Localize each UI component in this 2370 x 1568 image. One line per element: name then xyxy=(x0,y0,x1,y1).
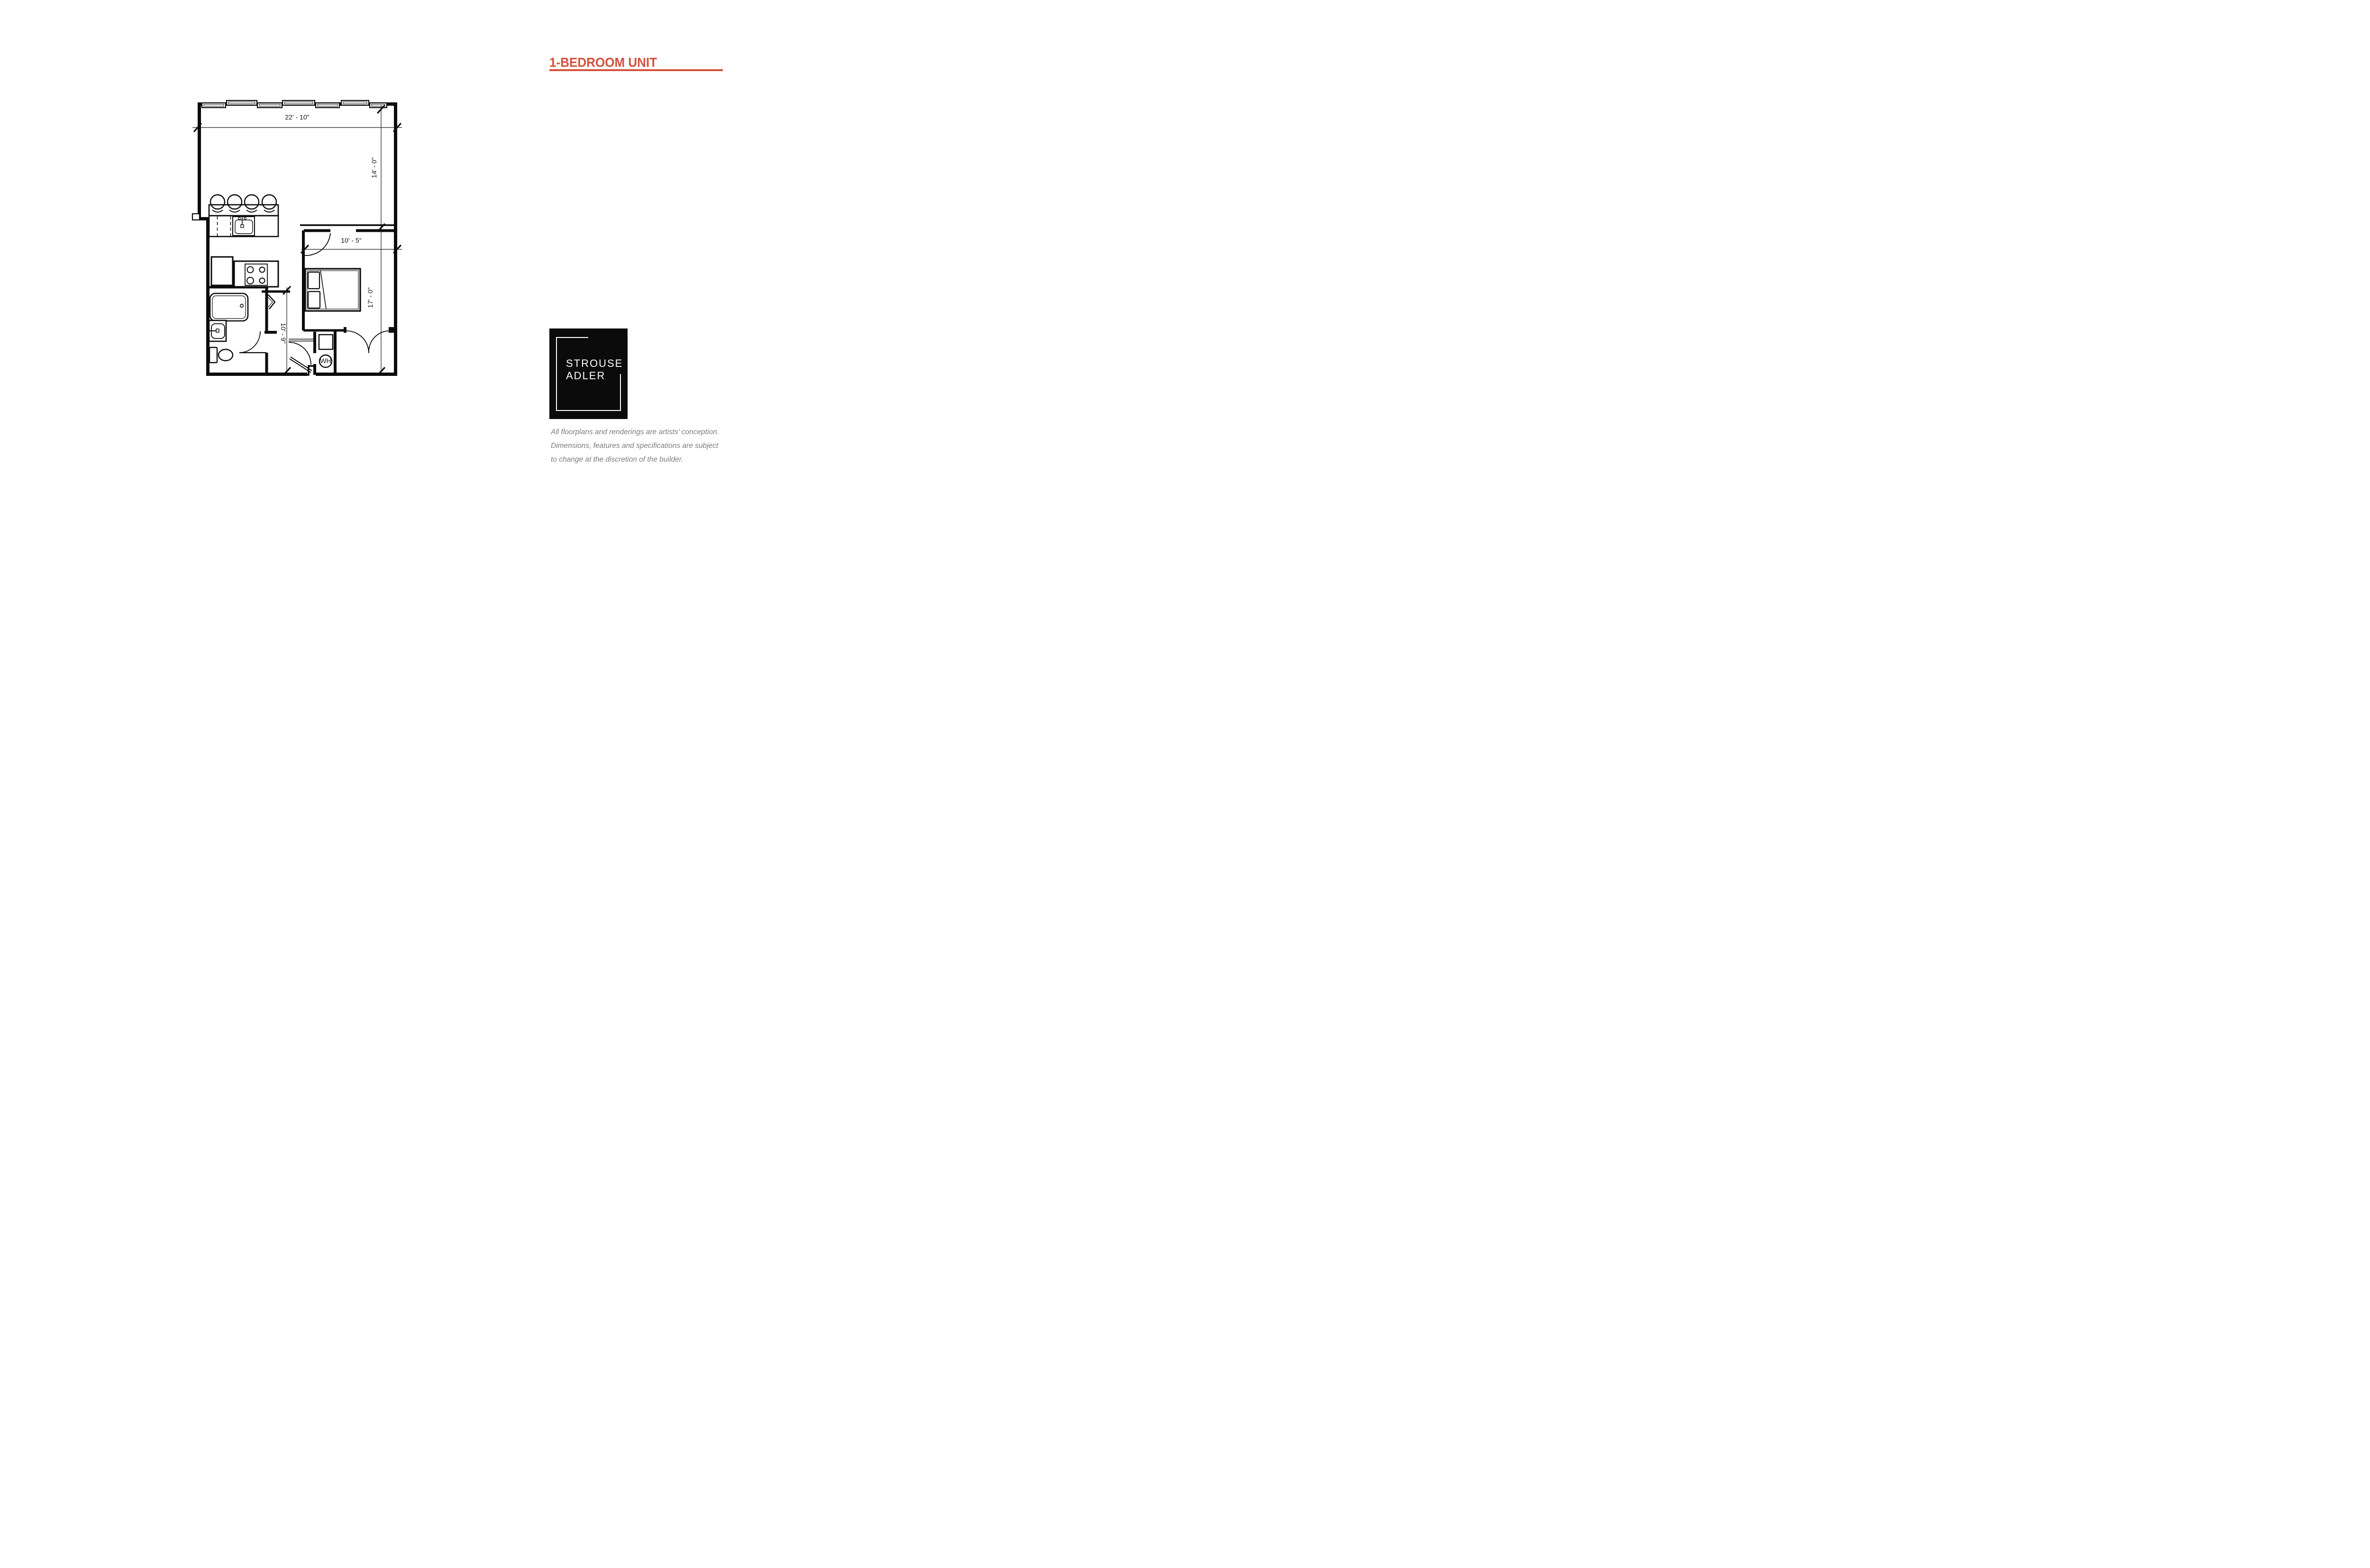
disclaimer-line: All floorplans and renderings are artist… xyxy=(551,425,732,439)
dim-living-width: 22' - 10" xyxy=(285,113,309,121)
window-icon xyxy=(257,103,282,108)
bar-counter xyxy=(209,205,278,216)
bedroom: WH xyxy=(305,233,390,367)
window-icon xyxy=(202,103,226,108)
window-icon xyxy=(341,100,369,105)
vanity-sink-icon xyxy=(209,320,226,341)
water-heater-icon: WH xyxy=(319,335,333,367)
ajar-door-icon xyxy=(267,295,275,309)
dim-hall-length: 10' - 9" xyxy=(280,323,287,343)
window-icon xyxy=(283,100,315,105)
logo-frame-left xyxy=(556,337,557,411)
window-icon xyxy=(316,103,339,108)
bathtub-icon xyxy=(210,293,248,321)
logo-frame-top xyxy=(556,337,588,338)
logo-word-1: STROUSE xyxy=(566,358,623,369)
bathroom-door-arc xyxy=(240,331,260,353)
dim-living-depth: 14' - 0" xyxy=(370,157,378,178)
bar-stools-icon xyxy=(210,195,276,212)
strouse-adler-logo: STROUSE ADLER xyxy=(549,328,628,419)
left-wall-jog xyxy=(192,214,200,220)
entry-door xyxy=(289,339,313,373)
bedroom-door-arc xyxy=(305,233,330,255)
disclaimer-text: All floorplans and renderings are artist… xyxy=(551,425,732,466)
dim-bedroom-depth: 17' - 0" xyxy=(366,287,374,308)
logo-word-2: ADLER xyxy=(566,371,605,381)
refrigerator-icon xyxy=(211,257,233,285)
disclaimer-line: to change at the discretion of the build… xyxy=(551,453,732,466)
logo-frame-bottom xyxy=(556,410,621,411)
logo-frame-right xyxy=(620,374,621,411)
bed-icon xyxy=(305,269,360,311)
kitchen-sink-icon xyxy=(233,217,255,236)
toilet-icon xyxy=(210,347,233,363)
window-icon xyxy=(227,100,257,105)
kitchen xyxy=(209,195,278,287)
flyer-page: 22' - 10" 14' - 0" 10' - 5" 17' - 0" 10'… xyxy=(0,0,732,474)
stove-icon xyxy=(234,261,278,287)
window-band xyxy=(202,100,387,108)
closet-double-doors-icon xyxy=(346,331,390,353)
water-heater-label: WH xyxy=(320,357,331,365)
page-title: 1-BEDROOM UNIT xyxy=(549,55,657,70)
dim-bedroom-width: 10' - 5" xyxy=(341,237,361,244)
disclaimer-line: Dimensions, features and specifications … xyxy=(551,439,732,453)
title-underline xyxy=(549,69,723,71)
